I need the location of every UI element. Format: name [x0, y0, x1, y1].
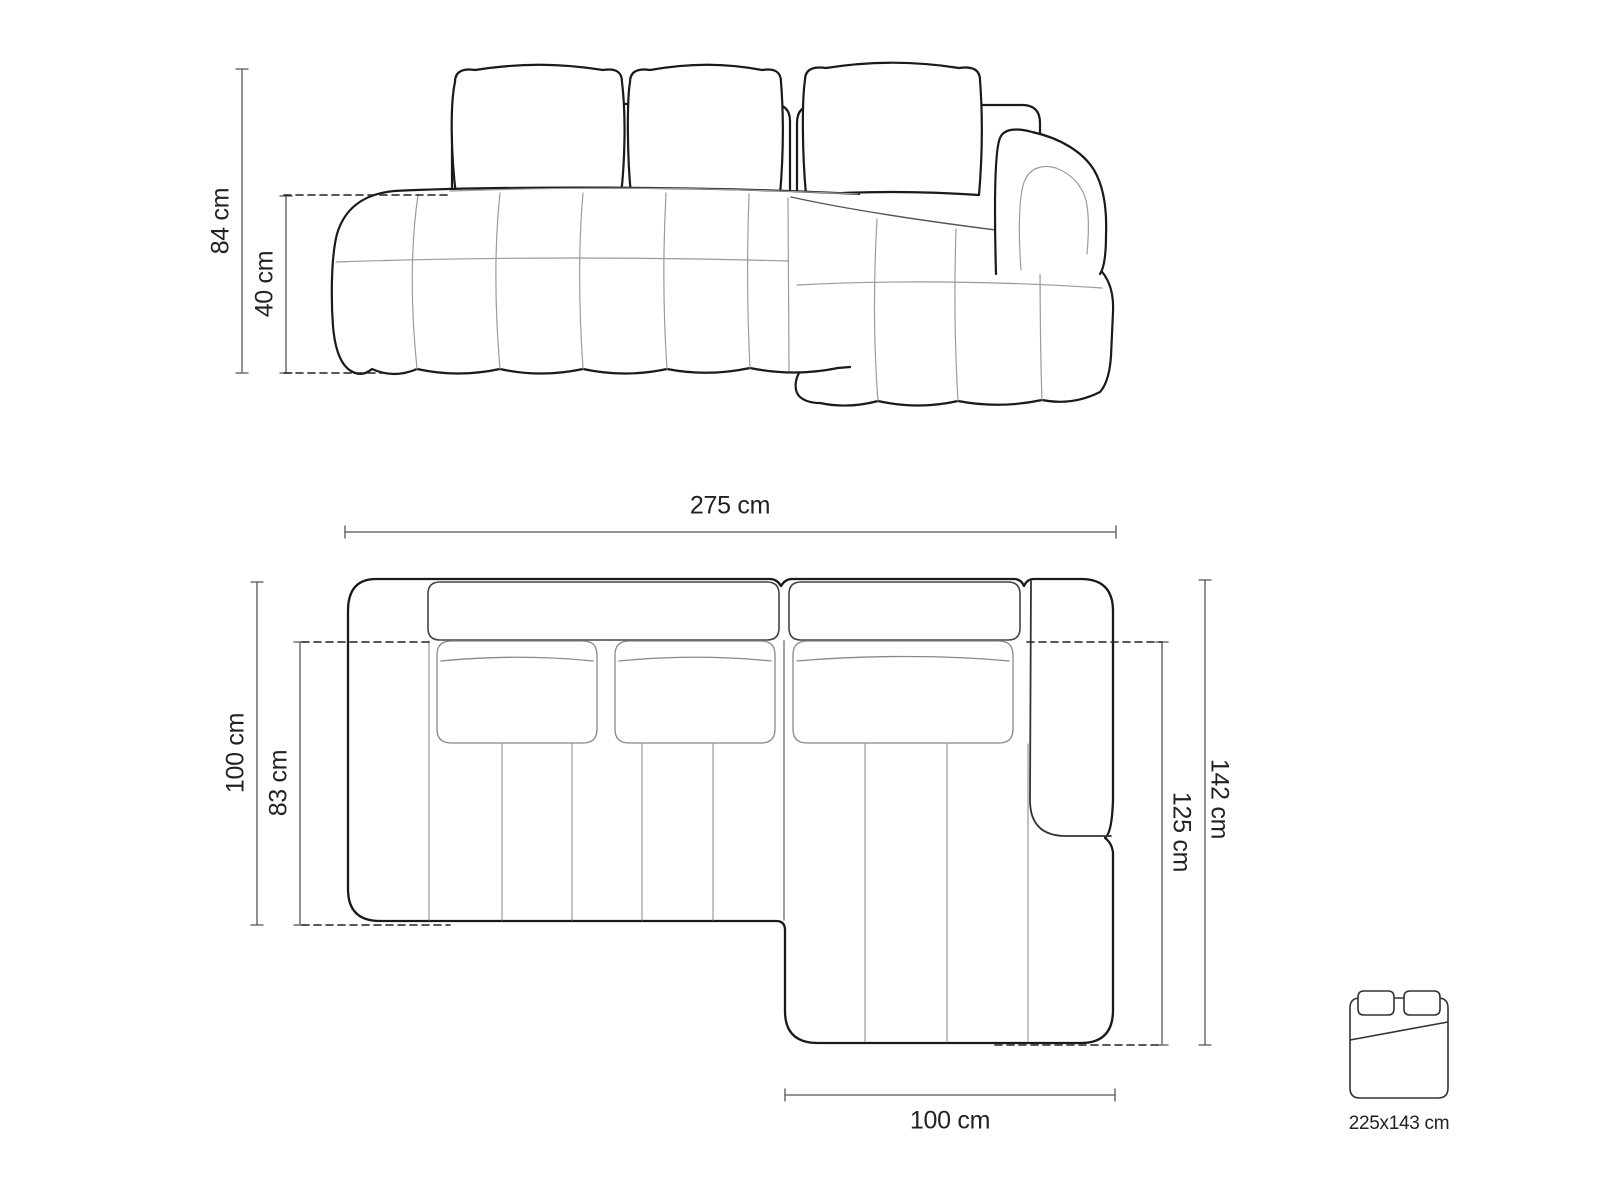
chaise-width-label: 100 cm	[910, 1107, 990, 1136]
chaise-inner-depth-label: 125 cm	[1167, 792, 1196, 872]
bed-pillow-left	[1358, 991, 1394, 1015]
sofa-dimension-diagram: 84 cm 40 cm 275 cm 100 cm 83 cm 142 cm 1…	[0, 0, 1600, 1200]
seat-height-label: 40 cm	[251, 251, 280, 318]
bed-sheet-fold	[1350, 1022, 1448, 1040]
seat-face	[332, 188, 861, 374]
front-dimension-lines	[236, 69, 292, 373]
back-pillow-1	[452, 65, 625, 195]
bed-pillow-right	[1404, 991, 1440, 1015]
plan-pillows	[437, 641, 1013, 743]
seat-depth-label: 83 cm	[265, 750, 294, 817]
back-pillow-3	[803, 63, 982, 195]
total-width-label: 275 cm	[690, 492, 770, 521]
back-pillow-2	[628, 65, 783, 195]
bed-size-label: 225x143 cm	[1349, 1113, 1450, 1135]
total-height-label: 84 cm	[207, 188, 236, 255]
bed-icon	[1350, 991, 1448, 1098]
armrest-face	[995, 130, 1106, 274]
chaise-total-depth-label: 142 cm	[1205, 759, 1234, 839]
top-view-drawing	[251, 526, 1211, 1101]
front-view-drawing	[236, 63, 1113, 406]
total-depth-label: 100 cm	[222, 713, 251, 793]
technical-drawing	[0, 0, 1600, 1200]
